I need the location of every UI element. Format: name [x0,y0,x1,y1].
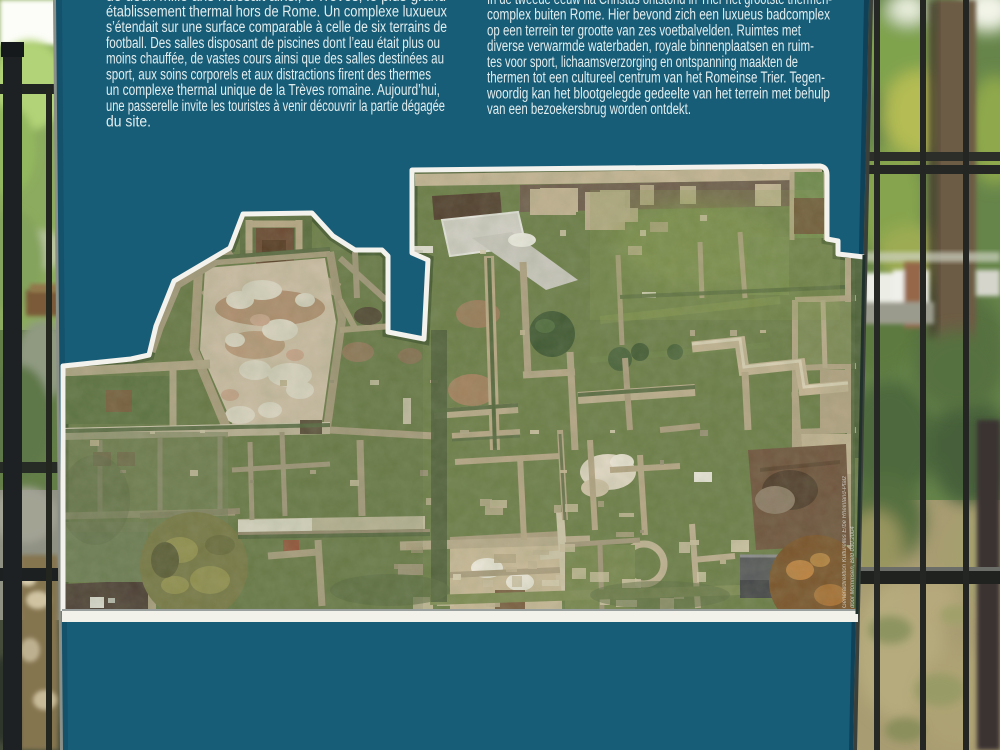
svg-text:diverse verwarmde waterbaden,: diverse verwarmde waterbaden, royale bin… [487,38,814,55]
svg-text:complex buiten Rome. Hier bevo: complex buiten Rome. Hier bevond zich ee… [487,7,830,24]
svg-text:tes voor sport, lichaamsverzor: tes voor sport, lichaamsverzorging en on… [487,54,798,71]
svg-text:du site.: du site. [106,114,151,131]
svg-text:une passerelle invite les tour: une passerelle invite les touristes à ve… [106,98,445,115]
svg-text:moins chauffée, de vastes cour: moins chauffée, de vastes cours ainsi qu… [106,51,444,68]
svg-text:sport, aux soins corporels et: sport, aux soins corporels et aux distra… [106,66,431,83]
svg-text:établissement thermal hors de: établissement thermal hors de Rome. Un c… [106,3,447,20]
svg-text:van een bezoekersbrug worden o: van een bezoekersbrug worden ontdekt. [487,101,691,118]
svg-text:op een terrein ter grootte van: op een terrein ter grootte van zes voetb… [487,23,802,40]
svg-text:s’étendait sur une surface co: s’étendait sur une surface comparable à … [106,19,447,36]
svg-text:door Mommsen, Bild 030.2004: door Mommsen, Bild 030.2004 [850,526,856,608]
svg-text:thermen tot een cultureel cent: thermen tot een cultureel centrum van he… [487,70,825,87]
svg-text:Generaldirektion Kulturelles E: Generaldirektion Kulturelles Erbe Rheinl… [842,476,848,608]
svg-text:football. Des salles disposant: football. Des salles disposant de piscin… [106,35,440,52]
svg-text:woordig kan het blootgelegde g: woordig kan het blootgelegde gedeelte va… [486,85,830,102]
svg-text:un complexe thermal unique de: un complexe thermal unique de la Trèves … [106,82,440,99]
